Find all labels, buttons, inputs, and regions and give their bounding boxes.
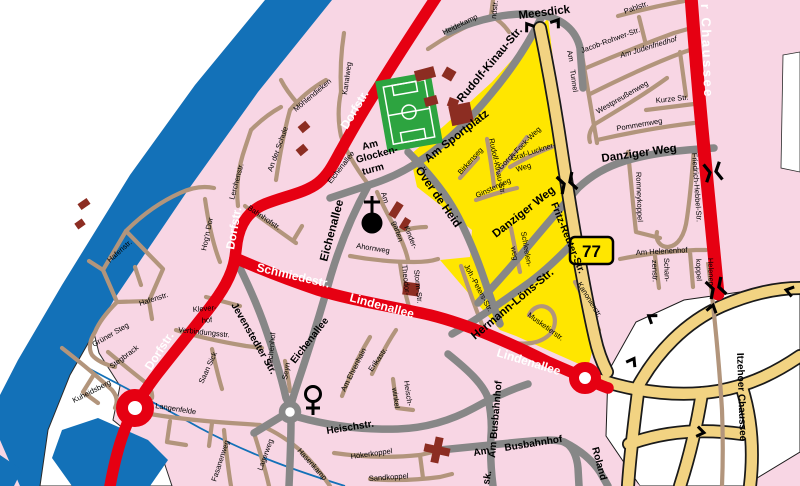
road-jevenstedter-south bbox=[289, 420, 291, 486]
map-viewport[interactable]: 77 Dorfstr. Dorfstr. Dorfstr. Schmiedest… bbox=[0, 0, 800, 486]
street-label-koppel: koppel bbox=[694, 259, 704, 282]
street-label-zenstr: zenstr. bbox=[650, 260, 660, 282]
map-canvas[interactable]: 77 Dorfstr. Dorfstr. Dorfstr. Schmiedest… bbox=[0, 0, 800, 486]
route-badge-number: 77 bbox=[582, 242, 601, 261]
roundabout-dorfstr bbox=[122, 395, 148, 421]
street-label-kleverhof-2: hof bbox=[201, 315, 213, 325]
unmapped-area-right bbox=[781, 52, 800, 172]
street-label-romneykoppel: Romneykoppel bbox=[634, 172, 645, 223]
roundabout-jevenstedter bbox=[282, 404, 298, 420]
street-label-helenen: Helenen- bbox=[706, 258, 716, 289]
street-label-ndstr: ndstr. bbox=[489, 0, 500, 19]
roundabout-lindenallee bbox=[574, 367, 596, 389]
street-label-schan: Schan- bbox=[662, 258, 672, 283]
